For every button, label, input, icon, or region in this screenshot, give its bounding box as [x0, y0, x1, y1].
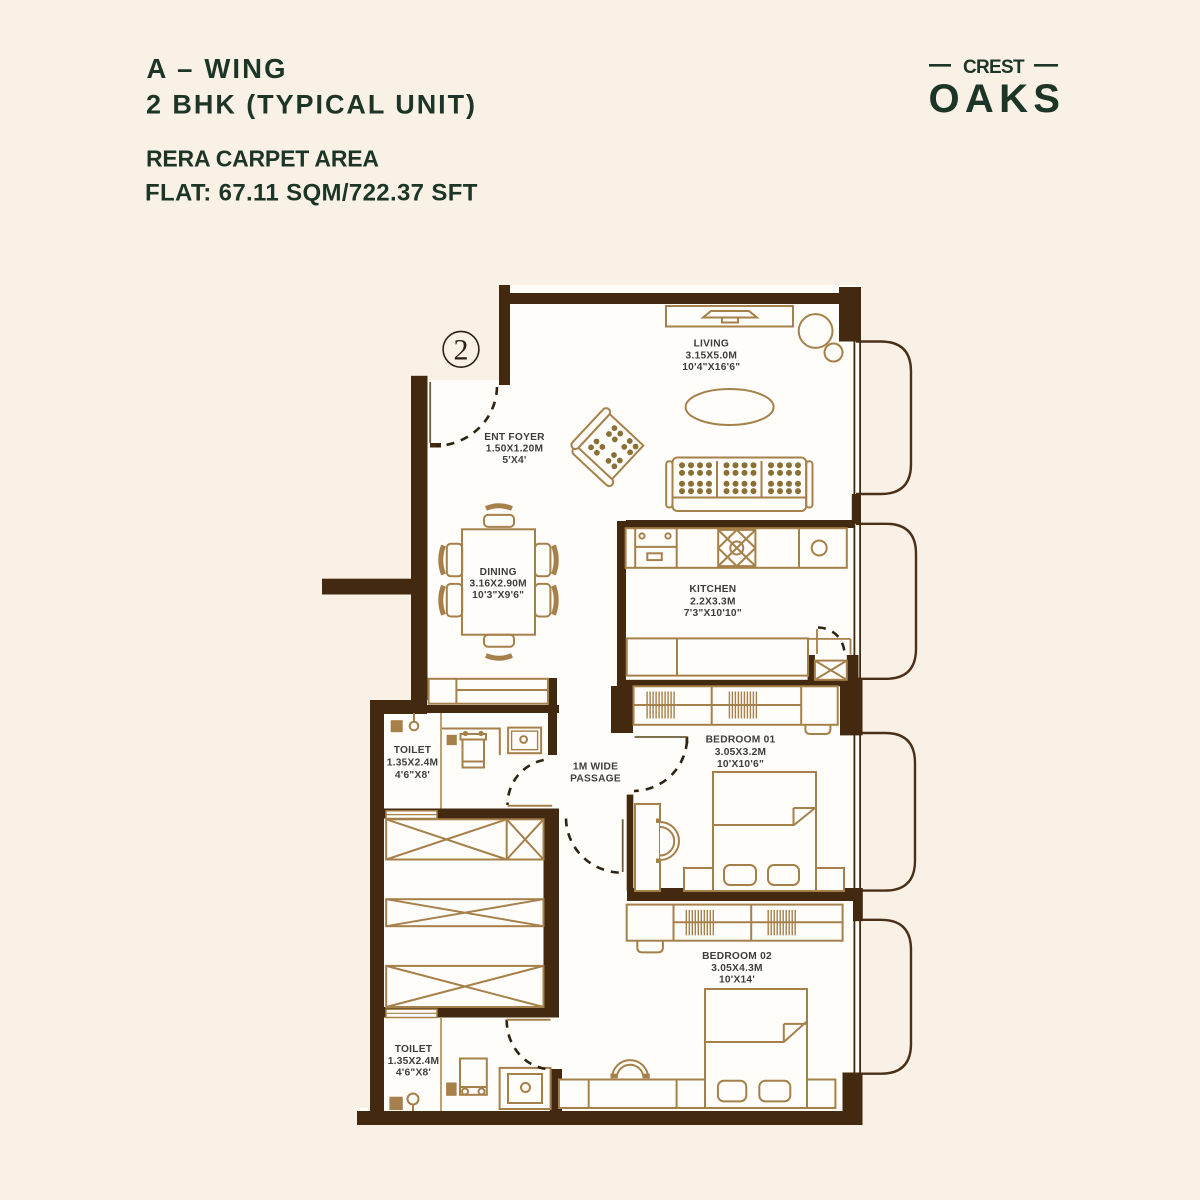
svg-text:7'3"X10'10": 7'3"X10'10" — [684, 608, 742, 619]
svg-text:10'3"X9'6": 10'3"X9'6" — [472, 590, 524, 601]
svg-text:1M WIDE: 1M WIDE — [573, 762, 618, 773]
svg-text:5'X4': 5'X4' — [502, 455, 526, 466]
svg-text:2: 2 — [454, 334, 469, 367]
svg-text:DINING: DINING — [480, 567, 517, 578]
svg-text:RERA CARPET AREA: RERA CARPET AREA — [146, 146, 379, 172]
svg-text:KITCHEN: KITCHEN — [689, 584, 736, 595]
svg-text:1.50X1.20M: 1.50X1.20M — [486, 444, 543, 455]
svg-text:PASSAGE: PASSAGE — [570, 774, 621, 785]
svg-text:FLAT: 67.11 SQM/722.37 SFT: FLAT: 67.11 SQM/722.37 SFT — [145, 179, 478, 206]
svg-text:LIVING: LIVING — [694, 339, 729, 350]
svg-text:ENT FOYER: ENT FOYER — [484, 432, 545, 443]
svg-text:TOILET: TOILET — [394, 745, 432, 756]
svg-text:TOILET: TOILET — [395, 1044, 433, 1055]
svg-text:BEDROOM 02: BEDROOM 02 — [702, 951, 772, 962]
svg-text:10'4"X16'6": 10'4"X16'6" — [682, 362, 740, 373]
svg-text:3.05X3.2M: 3.05X3.2M — [715, 747, 767, 758]
svg-text:10'X10'6": 10'X10'6" — [717, 759, 764, 770]
svg-text:10'X14': 10'X14' — [719, 975, 755, 986]
svg-text:2.2X3.3M: 2.2X3.3M — [690, 596, 736, 607]
svg-text:BEDROOM 01: BEDROOM 01 — [706, 735, 776, 746]
svg-text:2 BHK (TYPICAL UNIT): 2 BHK (TYPICAL UNIT) — [146, 90, 477, 120]
svg-text:1.35X2.4M: 1.35X2.4M — [388, 1056, 440, 1067]
svg-text:3.16X2.90M: 3.16X2.90M — [469, 579, 526, 590]
svg-text:1.35X2.4M: 1.35X2.4M — [387, 758, 439, 769]
svg-text:4'6"X8': 4'6"X8' — [396, 1068, 431, 1079]
svg-text:3.05X4.3M: 3.05X4.3M — [711, 963, 763, 974]
svg-text:CREST: CREST — [963, 57, 1025, 78]
svg-text:3.15X5.0M: 3.15X5.0M — [686, 351, 738, 362]
svg-text:OAKS: OAKS — [929, 77, 1066, 121]
svg-text:A – WING: A – WING — [147, 53, 288, 84]
svg-text:4'6"X8': 4'6"X8' — [395, 770, 430, 781]
